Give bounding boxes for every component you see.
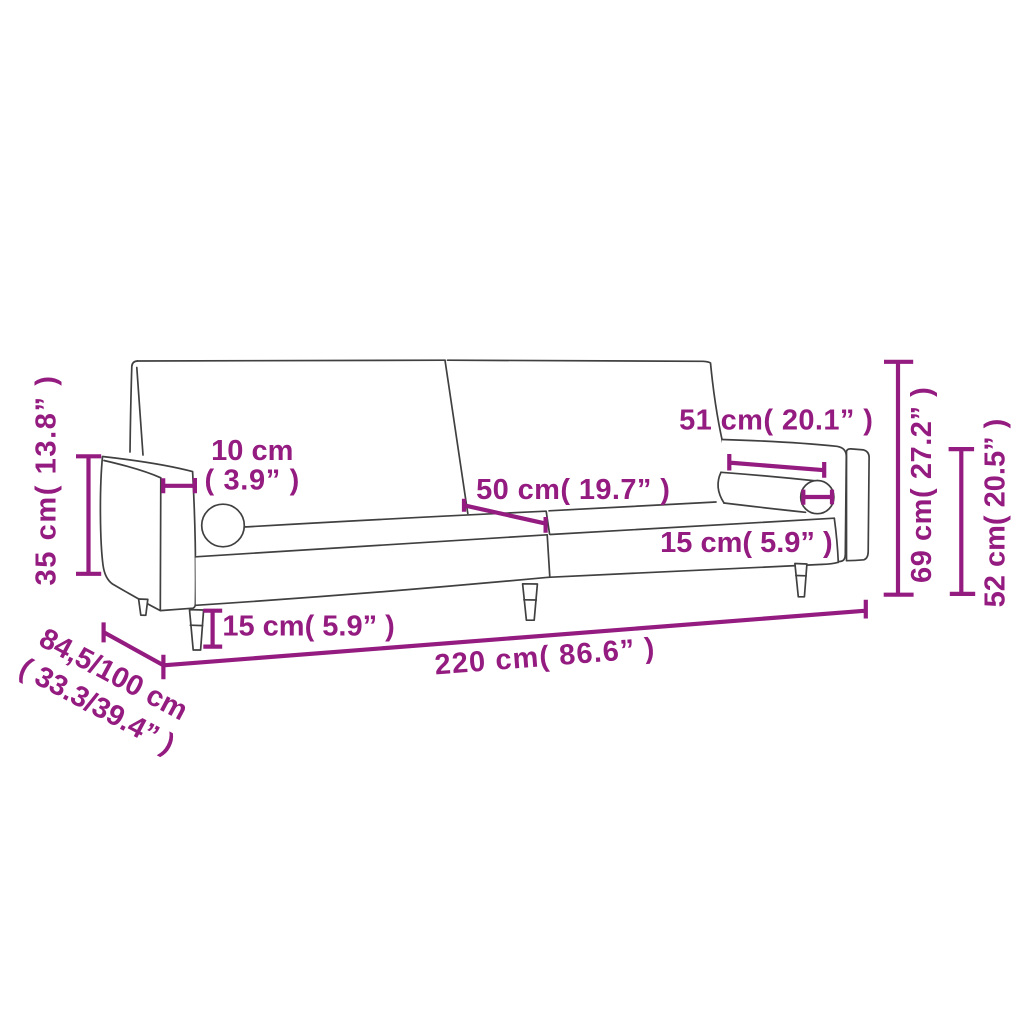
svg-text:15 cm( 5.9” ): 15 cm( 5.9” ) [660,527,832,559]
svg-text:51 cm( 20.1” ): 51 cm( 20.1” ) [679,404,873,436]
svg-text:50 cm( 19.7” ): 50 cm( 19.7” ) [476,474,670,506]
svg-text:69 cm( 27.2” ): 69 cm( 27.2” ) [906,387,938,583]
svg-text:35 cm( 13.8” ): 35 cm( 13.8” ) [31,375,63,586]
svg-text:( 3.9” ): ( 3.9” ) [204,464,299,496]
svg-text:15 cm( 5.9” ): 15 cm( 5.9” ) [222,611,394,643]
svg-text:10 cm: 10 cm [211,435,293,467]
svg-text:52 cm( 20.5” ): 52 cm( 20.5” ) [980,419,1012,608]
